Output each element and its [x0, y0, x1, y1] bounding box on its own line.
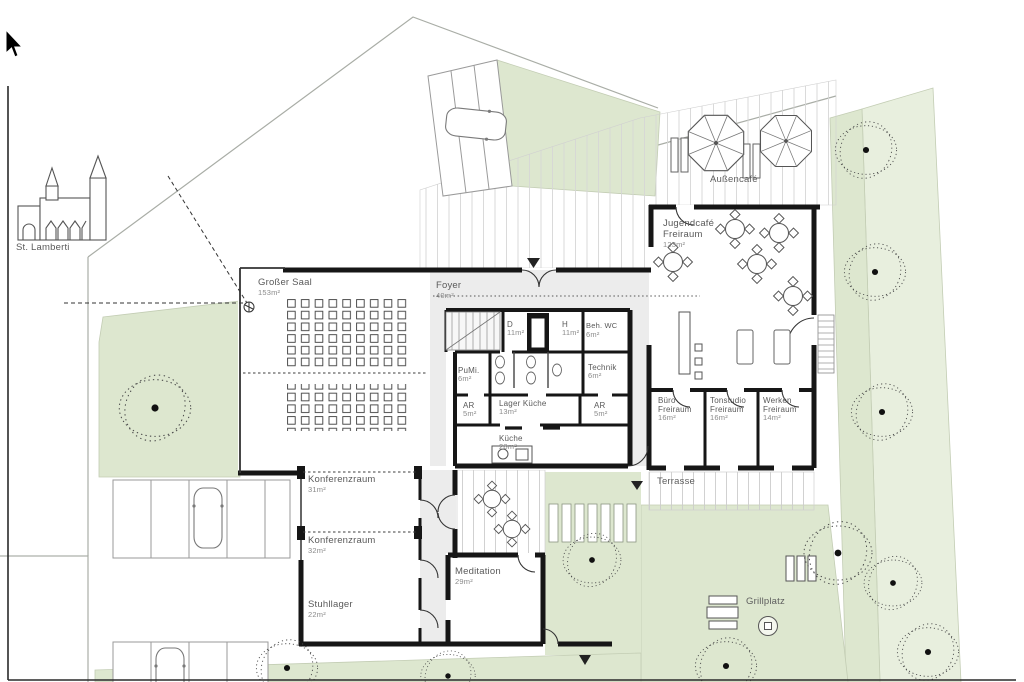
outdoor-stairs: [818, 315, 834, 373]
room-label-wc-d: D 11m²: [507, 320, 524, 338]
bar-counter: [679, 312, 690, 374]
room-label-foyer: Foyer 40m²: [436, 281, 461, 301]
room-label-lager-kueche: Lager Küche 13m²: [499, 399, 547, 417]
room-label-buero: Büro Freiraum 16m²: [658, 396, 706, 423]
room-label-wc-h: H 11m²: [562, 320, 579, 338]
mouse-cursor: [6, 30, 22, 57]
saal-chair-rows: [287, 299, 411, 431]
room-label-grosser-saal: Großer Saal 153m²: [258, 278, 312, 298]
room-label-beh-wc: Beh. WC 6m²: [586, 322, 628, 339]
church-icon: [18, 156, 106, 240]
sunbeds: [549, 504, 636, 542]
room-label-konferenzraum-2: Konferenzraum 32m²: [308, 536, 376, 556]
elevator-shaft: [531, 318, 545, 348]
room-label-kueche: Küche 28m²: [499, 434, 523, 452]
label-aussencafe: Außencafé: [710, 175, 758, 186]
lounger: [774, 330, 790, 364]
lounger: [737, 330, 753, 364]
room-label-konferenzraum-1: Konferenzraum 31m²: [308, 475, 376, 495]
room-label-meditation: Meditation 29m²: [455, 567, 501, 587]
room-label-jugendcafe: Jugendcafé Freiraum 123m²: [663, 219, 725, 249]
foyer-stairs: [446, 312, 500, 350]
floor-plan-drawing: [0, 0, 1024, 682]
room-label-ar-left: AR 5m²: [463, 401, 477, 419]
church-label: St. Lamberti: [16, 243, 70, 254]
room-label-technik: Technik 6m²: [588, 363, 617, 381]
label-terrasse: Terrasse: [657, 477, 695, 488]
room-label-werken: Werken Freiraum 14m²: [763, 396, 815, 423]
label-grillplatz: Grillplatz: [746, 597, 785, 608]
courtyard-deck: [457, 470, 545, 558]
room-label-ar-right: AR 5m²: [594, 401, 608, 419]
floor-plan-screenshot: St. Lamberti Großer Saal 153m² Foyer 40m…: [0, 0, 1024, 682]
room-label-tonstudio: Tonstudio Freiraum 16m²: [710, 396, 766, 423]
room-label-pumi: PuMi. 6m²: [458, 366, 479, 384]
room-label-stuhllager: Stuhllager 22m²: [308, 600, 353, 620]
